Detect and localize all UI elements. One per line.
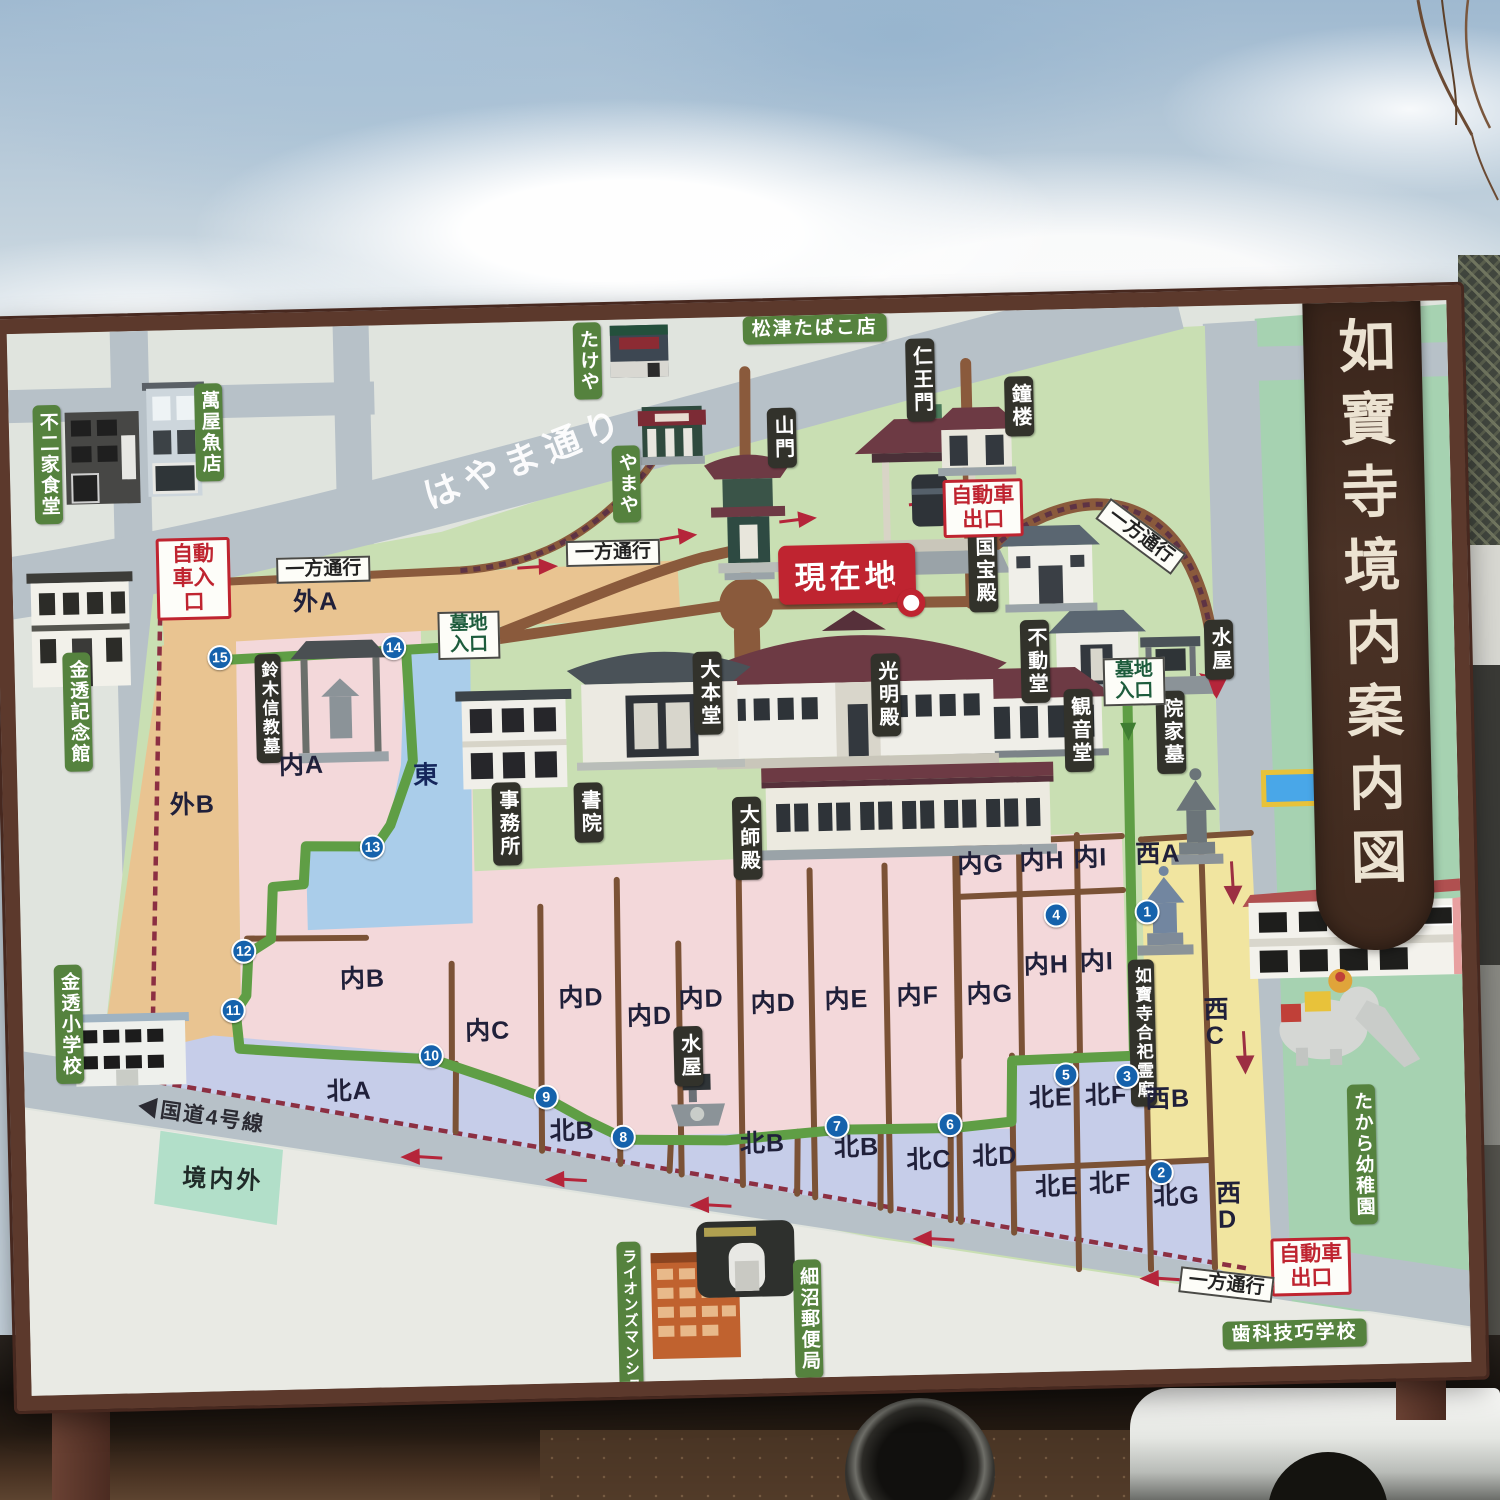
section-label-kita-b-1: 北B — [549, 1117, 595, 1144]
section-label-uchi-e: 内E — [824, 986, 868, 1013]
yamaya-shop-building — [638, 406, 707, 466]
kokuhoden-label: 国宝殿 — [968, 529, 999, 613]
sign-title-banner: 如寶寺境内案内図 — [1302, 300, 1435, 951]
komyoden-label: 光明殿 — [870, 653, 901, 737]
section-label-kita-g: 北G — [1153, 1182, 1200, 1209]
niomon-label: 仁王門 — [905, 338, 936, 422]
post-office-building — [696, 1220, 796, 1298]
kindergarten-label: たから幼稚園 — [1347, 1084, 1378, 1225]
section-label-uchi-d-1: 内D — [558, 984, 604, 1011]
car-entrance-sign: 自動車入口 — [156, 537, 232, 621]
shoin-building — [566, 650, 753, 771]
fudodo-label: 不動堂 — [1020, 620, 1051, 704]
daishiden-label: 大師殿 — [732, 796, 763, 880]
section-label-uchi-c: 内C — [465, 1017, 511, 1044]
section-label-kita-d: 北D — [972, 1143, 1018, 1170]
section-label-kita-b-2: 北B — [740, 1130, 786, 1157]
section-label-uchi-i-top: 内I — [1073, 844, 1108, 871]
kinenkan-label: 金透記念館 — [62, 652, 93, 772]
section-label-uchi-d-3: 内D — [678, 985, 724, 1012]
kinto-elementary-school-building — [71, 1012, 191, 1087]
section-label-uchi-f: 内F — [896, 982, 939, 1009]
lions-mansion-label: ライオンズマンション — [616, 1241, 644, 1395]
section-label-nishi-b: 西B — [1145, 1085, 1191, 1112]
one-way-sign-2: 一方通行 — [566, 539, 661, 567]
elementary-label: 金透小学校 — [54, 965, 85, 1085]
car-exit-sign-bottom: 自動車出口 — [1270, 1237, 1351, 1297]
section-label-kita-c: 北C — [906, 1146, 952, 1173]
yorozuya-label: 萬屋魚店 — [194, 383, 224, 482]
section-label-kita-a: 北A — [326, 1078, 372, 1105]
section-label-kita-e-1: 北E — [1029, 1084, 1073, 1111]
keidai-gai-label: 境内外 — [182, 1157, 265, 1196]
section-label-soto-b: 外B — [170, 791, 216, 818]
takeya-label: たけや — [573, 322, 603, 400]
kokuhoden-building — [1000, 524, 1102, 612]
cemetery-entrance-sign-right: 墓地入口 — [1103, 657, 1166, 706]
section-label-uchi-g-top: 内G — [957, 851, 1004, 878]
section-label-nishi-d: 西D — [1213, 1179, 1241, 1235]
post-office-label: 細沼郵便局 — [793, 1259, 824, 1379]
temple-guide-map-signboard: 如寶寺境内案内図 はやま通り ◀国道4号線 境内外 松津たばこ店 たけや やまや… — [0, 285, 1487, 1411]
section-label-kita-e-2: 北E — [1035, 1173, 1079, 1200]
section-label-soto-a: 外A — [293, 588, 339, 615]
photo-of-temple-map-sign: 如寶寺境内案内図 はやま通り ◀国道4号線 境内外 松津たばこ店 たけや やまや… — [0, 0, 1500, 1500]
cemetery-entrance-sign-left: 墓地入口 — [437, 611, 500, 660]
section-label-uchi-d-4: 内D — [750, 990, 796, 1017]
section-label-uchi-h-top: 内H — [1019, 847, 1065, 874]
shoro-label: 鐘楼 — [1004, 376, 1034, 437]
dental-school-label: 歯科技巧学校 — [1222, 1318, 1367, 1349]
kannondo-label: 観音堂 — [1063, 689, 1094, 773]
tree-branches — [1398, 0, 1500, 230]
section-label-nishi-c: 西C — [1201, 996, 1229, 1052]
sign-title: 如寶寺境内案内図 — [1333, 316, 1404, 901]
takeya-shop-building — [610, 325, 669, 378]
map-canvas: 如寶寺境内案内図 はやま通り ◀国道4号線 境内外 松津たばこ店 たけや やまや… — [7, 300, 1472, 1396]
section-label-higashi: 東 — [413, 762, 440, 789]
section-label-uchi-i-mid: 内I — [1079, 948, 1114, 975]
matsuzu-tobacco-label: 松津たばこ店 — [742, 313, 887, 344]
section-label-uchi-g-mid: 内G — [966, 981, 1013, 1008]
mizuya-top-label: 水屋 — [1204, 619, 1234, 680]
section-label-nishi-a: 西A — [1135, 841, 1181, 868]
section-label-kita-f-2: 北F — [1089, 1170, 1132, 1197]
shoin-label: 書院 — [573, 782, 603, 843]
one-way-sign-1: 一方通行 — [276, 556, 371, 584]
fujiya-restaurant-building — [65, 411, 141, 505]
car-exit-sign-top: 自動車出口 — [942, 478, 1023, 538]
section-label-uchi-h-mid: 内H — [1024, 951, 1070, 978]
section-label-uchi-b: 内B — [340, 965, 386, 992]
suzuki-grave-label: 鈴木信教墓 — [254, 654, 282, 764]
kindergarten-pool — [1263, 771, 1318, 804]
jimusho-label: 事務所 — [491, 782, 522, 866]
fujiya-label: 不二家食堂 — [32, 405, 63, 525]
yamaya-label: やまや — [611, 445, 641, 523]
sanmon-label: 山門 — [767, 408, 797, 469]
daishiden-building — [759, 762, 1057, 861]
daihondo-label: 大本堂 — [692, 651, 723, 735]
section-label-uchi-a: 内A — [279, 752, 325, 779]
mizuya-bottom-label: 水屋 — [673, 1026, 703, 1087]
section-label-uchi-d-2: 内D — [627, 1003, 673, 1030]
jimusho-office-building — [455, 689, 573, 790]
